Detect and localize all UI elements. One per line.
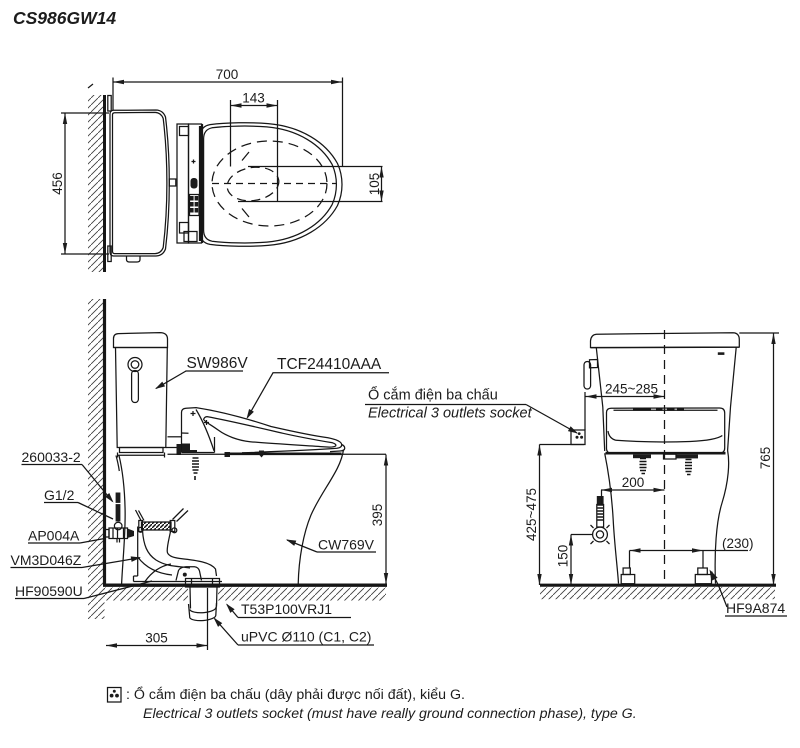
svg-text:105: 105 xyxy=(367,173,382,196)
svg-text:VM3D046Z: VM3D046Z xyxy=(11,552,82,568)
svg-text:Electrical 3 outlets socket (m: Electrical 3 outlets socket (must have r… xyxy=(143,706,637,722)
svg-text:765: 765 xyxy=(758,447,773,470)
svg-text:CW769V: CW769V xyxy=(318,537,375,553)
svg-text:245~285: 245~285 xyxy=(605,382,658,397)
svg-text:CS986GW14: CS986GW14 xyxy=(13,8,116,28)
svg-text:HF90590U: HF90590U xyxy=(15,583,83,599)
svg-text:AP004A: AP004A xyxy=(28,528,80,544)
svg-text:uPVC Ø110 (C1, C2): uPVC Ø110 (C1, C2) xyxy=(241,629,371,645)
svg-text:260033-2: 260033-2 xyxy=(22,449,81,465)
svg-text:Electrical 3 outlets socket: Electrical 3 outlets socket xyxy=(368,406,533,422)
svg-text:TCF24410AAA: TCF24410AAA xyxy=(277,356,382,373)
svg-text:395: 395 xyxy=(370,504,385,527)
svg-text:456: 456 xyxy=(50,172,65,195)
svg-text:Ổ cắm điện ba chấu: Ổ cắm điện ba chấu xyxy=(368,386,498,404)
svg-text:G1/2: G1/2 xyxy=(44,487,75,503)
svg-text:150: 150 xyxy=(556,545,571,568)
svg-text:: Ổ cắm điện ba chấu (dây phải: : Ổ cắm điện ba chấu (dây phải được nối … xyxy=(126,685,465,703)
svg-text:425~475: 425~475 xyxy=(524,488,539,541)
svg-text:200: 200 xyxy=(622,475,645,490)
svg-text:SW986V: SW986V xyxy=(187,355,249,372)
svg-text:143: 143 xyxy=(242,91,265,106)
svg-text:(230): (230) xyxy=(722,536,754,551)
svg-text:700: 700 xyxy=(216,67,239,82)
svg-text:HF9A874: HF9A874 xyxy=(726,600,785,616)
svg-text:T53P100VRJ1: T53P100VRJ1 xyxy=(241,601,332,617)
svg-text:305: 305 xyxy=(145,631,168,646)
